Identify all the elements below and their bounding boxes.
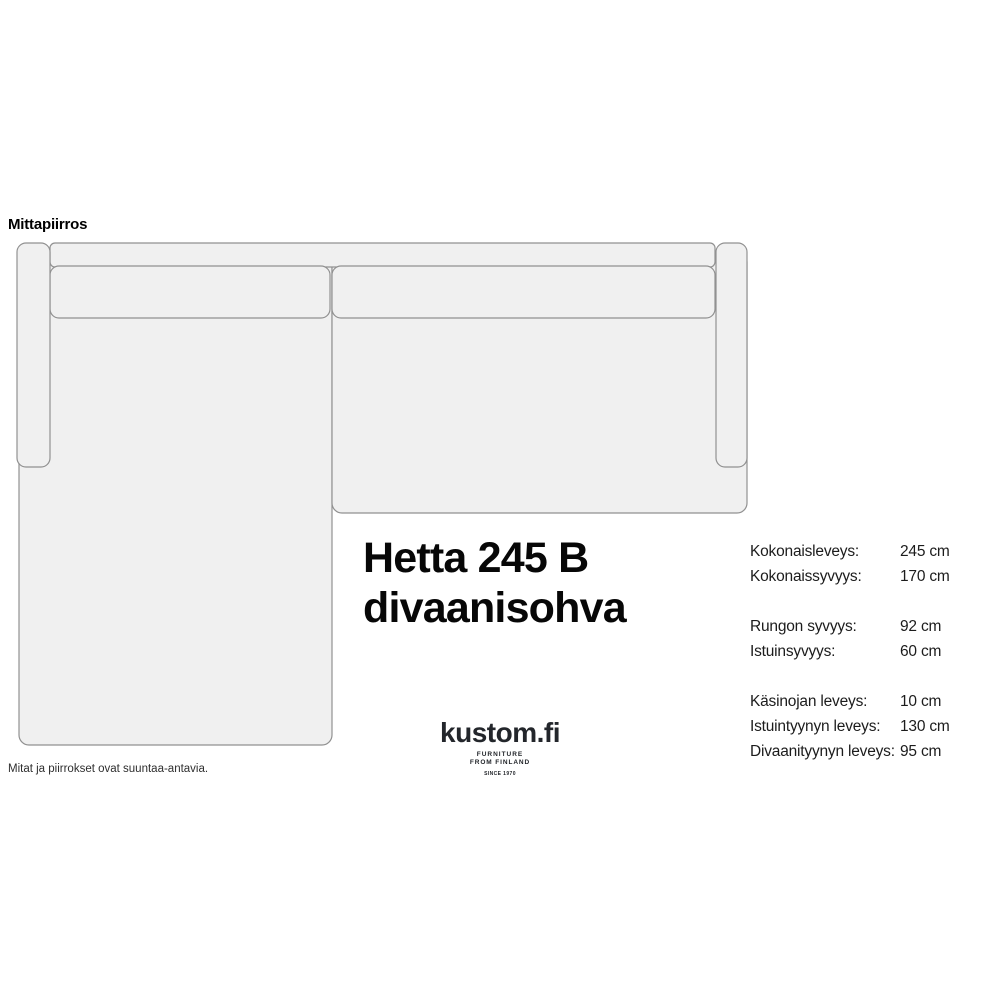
dimension-value: 10 cm bbox=[900, 689, 941, 714]
dimension-label: Istuinsyvyys: bbox=[750, 639, 900, 664]
sofa-left-armrest-icon bbox=[17, 243, 50, 467]
disclaimer-text: Mitat ja piirrokset ovat suuntaa-antavia… bbox=[8, 763, 208, 775]
dimension-value: 130 cm bbox=[900, 714, 950, 739]
dimension-value: 92 cm bbox=[900, 614, 941, 639]
dimension-label: Kokonaisleveys: bbox=[750, 539, 900, 564]
sofa-back-cushion-left-icon bbox=[50, 266, 330, 318]
dimension-value: 170 cm bbox=[900, 564, 950, 589]
dimension-label: Istuintyynyn leveys: bbox=[750, 714, 900, 739]
sofa-top-view-diagram bbox=[0, 240, 760, 760]
dimension-row: Käsinojan leveys: 10 cm bbox=[750, 689, 950, 714]
dimension-value: 95 cm bbox=[900, 739, 941, 764]
dimension-group-overall: Kokonaisleveys: 245 cm Kokonaissyvyys: 1… bbox=[750, 539, 950, 589]
dimension-label: Kokonaissyvyys: bbox=[750, 564, 900, 589]
dimension-row: Rungon syvyys: 92 cm bbox=[750, 614, 950, 639]
brand-since-text: SINCE 1970 bbox=[420, 771, 580, 777]
sofa-back-frame-icon bbox=[50, 243, 715, 267]
product-title-line2: divaanisohva bbox=[363, 583, 626, 633]
sofa-back-cushion-right-icon bbox=[332, 266, 715, 318]
product-title: Hetta 245 B divaanisohva bbox=[363, 533, 626, 633]
dimension-label: Rungon syvyys: bbox=[750, 614, 900, 639]
brand-wordmark: kustom.fi bbox=[420, 719, 580, 746]
dimension-label: Käsinojan leveys: bbox=[750, 689, 900, 714]
sofa-right-armrest-icon bbox=[716, 243, 747, 467]
dimension-group-depth: Rungon syvyys: 92 cm Istuinsyvyys: 60 cm bbox=[750, 614, 950, 664]
dimension-value: 245 cm bbox=[900, 539, 950, 564]
brand-logo: kustom.fi FURNITURE FROM FINLAND SINCE 1… bbox=[420, 719, 580, 777]
dimension-row: Istuinsyvyys: 60 cm bbox=[750, 639, 950, 664]
dimension-group-widths: Käsinojan leveys: 10 cm Istuintyynyn lev… bbox=[750, 689, 950, 764]
dimension-label: Divaanityynyn leveys: bbox=[750, 739, 900, 764]
dimension-value: 60 cm bbox=[900, 639, 941, 664]
dimension-row: Kokonaisleveys: 245 cm bbox=[750, 539, 950, 564]
dimension-sheet: Mittapiirros Hetta 245 B divaanisohva Ko… bbox=[0, 0, 1000, 1000]
sofa-divan-seat-icon bbox=[19, 252, 332, 745]
dimension-row: Divaanityynyn leveys: 95 cm bbox=[750, 739, 950, 764]
dimension-list: Kokonaisleveys: 245 cm Kokonaissyvyys: 1… bbox=[750, 539, 950, 764]
dimension-row: Kokonaissyvyys: 170 cm bbox=[750, 564, 950, 589]
brand-tagline-line2: FROM FINLAND bbox=[420, 759, 580, 767]
brand-tagline-line1: FURNITURE bbox=[420, 751, 580, 759]
section-title: Mittapiirros bbox=[8, 216, 87, 233]
product-title-line1: Hetta 245 B bbox=[363, 533, 626, 583]
dimension-row: Istuintyynyn leveys: 130 cm bbox=[750, 714, 950, 739]
